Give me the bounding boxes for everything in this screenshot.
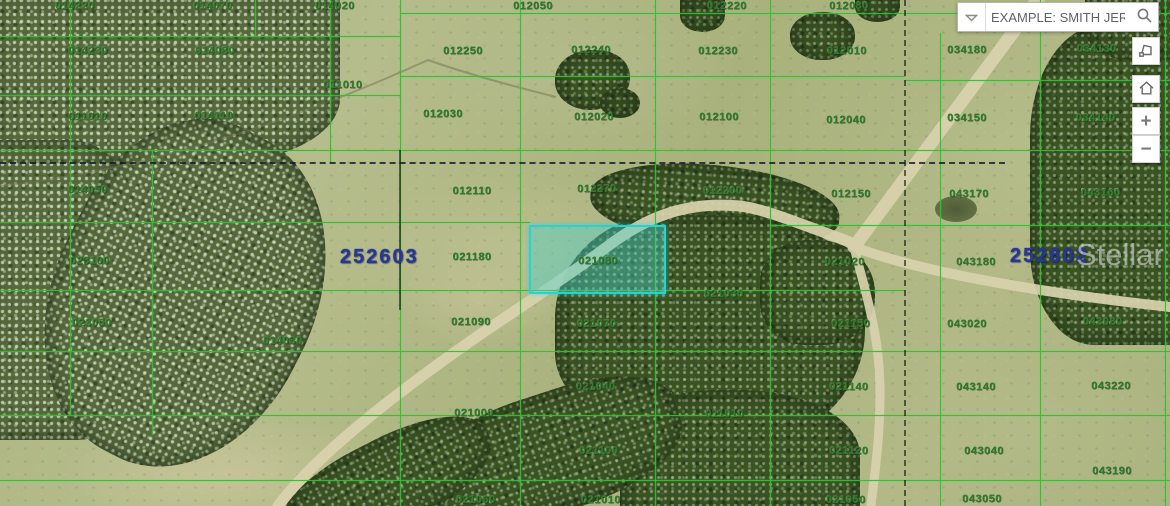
parcel-label-012040: 012040 bbox=[826, 114, 866, 126]
parcel-label-012200: 012200 bbox=[703, 185, 743, 197]
section-boundary-line bbox=[0, 162, 1005, 164]
parcel-label-021000: 021000 bbox=[454, 407, 494, 419]
parcel-label-014070: 014070 bbox=[193, 0, 233, 12]
parcel-label-021080: 021080 bbox=[578, 255, 618, 267]
parcel-label-034130: 034130 bbox=[1077, 43, 1117, 55]
parcel-label-014220: 014220 bbox=[55, 0, 95, 12]
parcel-label-012110: 012110 bbox=[452, 185, 491, 197]
section-boundary-line bbox=[904, 0, 906, 506]
measure-tool-button[interactable] bbox=[1132, 37, 1160, 65]
zoom-in-button[interactable]: + bbox=[1132, 107, 1160, 135]
parcel-label-012250: 012250 bbox=[443, 45, 483, 57]
search-type-dropdown[interactable] bbox=[958, 3, 986, 31]
section-boundary-line bbox=[399, 150, 401, 310]
zoom-out-button[interactable]: − bbox=[1132, 135, 1160, 163]
parcel-label-012270: 012270 bbox=[577, 183, 617, 195]
magnifier-icon bbox=[1136, 7, 1153, 27]
parcel-label-021120: 021120 bbox=[829, 445, 868, 457]
parcel-label-012020: 012020 bbox=[574, 111, 614, 123]
parcel-label-011010: 011010 bbox=[68, 111, 107, 123]
parcel-label-012010: 012010 bbox=[827, 45, 867, 57]
parcel-label-012030: 012030 bbox=[423, 108, 463, 120]
parcel-label-043160: 043160 bbox=[1081, 187, 1121, 199]
parcel-label-043050: 043050 bbox=[962, 493, 1002, 505]
parcel-label-012150: 012150 bbox=[831, 188, 871, 200]
parcel-label-034140: 034140 bbox=[1076, 112, 1116, 124]
parcel-label-021010: 021010 bbox=[581, 494, 621, 506]
forest-area bbox=[1030, 25, 1170, 345]
parcel-label-012230: 012230 bbox=[698, 45, 738, 57]
parcel-label-043170: 043170 bbox=[949, 188, 989, 200]
parcel-label-014030: 014030 bbox=[263, 335, 303, 347]
parcel-label-043040: 043040 bbox=[964, 445, 1004, 457]
home-button[interactable] bbox=[1132, 75, 1160, 103]
section-label: 252603 bbox=[340, 246, 419, 269]
parcel-label-021090: 021090 bbox=[451, 316, 491, 328]
parcel-label-021100: 021100 bbox=[579, 445, 618, 457]
parcel-label-012240: 012240 bbox=[571, 44, 611, 56]
trail bbox=[428, 60, 556, 97]
parcel-label-043220: 043220 bbox=[1091, 380, 1131, 392]
parcel-label-014020: 014020 bbox=[315, 0, 355, 12]
parcel-label-012050: 012050 bbox=[513, 0, 553, 12]
parcel-label-023100: 023100 bbox=[70, 255, 110, 267]
parcel-label-043180: 043180 bbox=[956, 256, 996, 268]
home-icon bbox=[1138, 80, 1155, 99]
parcel-label-014110: 014110 bbox=[194, 110, 233, 122]
parcel-label-043020: 043020 bbox=[947, 318, 987, 330]
parcel-label-021020: 021020 bbox=[825, 256, 865, 268]
parcel-label-023050: 023050 bbox=[72, 317, 112, 329]
search-input[interactable] bbox=[986, 3, 1130, 31]
parcel-label-043190: 043190 bbox=[1092, 465, 1132, 477]
parcel-label-012080: 012080 bbox=[829, 0, 869, 12]
map-viewport[interactable]: 0142200140700140200120500122200120800142… bbox=[0, 0, 1170, 506]
parcel-label-021150: 021150 bbox=[831, 318, 870, 330]
parcel-label-021030: 021030 bbox=[704, 288, 744, 300]
parcel-label-014080: 014080 bbox=[195, 45, 235, 57]
parcel-label-034150: 034150 bbox=[947, 112, 987, 124]
search-button[interactable] bbox=[1130, 3, 1158, 31]
parcel-label-011010: 011010 bbox=[705, 408, 744, 420]
parcel-label-021140: 021140 bbox=[829, 381, 868, 393]
parcel-label-021050: 021050 bbox=[826, 494, 866, 506]
search-bar bbox=[957, 2, 1159, 32]
chevron-down-icon bbox=[965, 10, 978, 25]
parcel-label-014050: 014050 bbox=[68, 184, 108, 196]
parcel-label-014230: 014230 bbox=[68, 45, 108, 57]
parcel-label-012100: 012100 bbox=[699, 111, 739, 123]
parcel-label-021060: 021060 bbox=[456, 494, 496, 506]
watermark: Stellar MLS bbox=[1076, 237, 1170, 273]
parcel-label-034180: 034180 bbox=[947, 44, 987, 56]
parcel-label-021070: 021070 bbox=[577, 318, 617, 330]
parcel-label-011010: 011010 bbox=[323, 79, 362, 91]
parcel-label-043140: 043140 bbox=[956, 381, 996, 393]
parcel-label-021040: 021040 bbox=[576, 381, 616, 393]
measure-polygon-icon bbox=[1138, 42, 1154, 61]
parcel-label-043080: 043080 bbox=[1083, 316, 1123, 328]
parcel-label-012220: 012220 bbox=[707, 0, 747, 12]
parcel-label-021180: 021180 bbox=[452, 251, 491, 263]
